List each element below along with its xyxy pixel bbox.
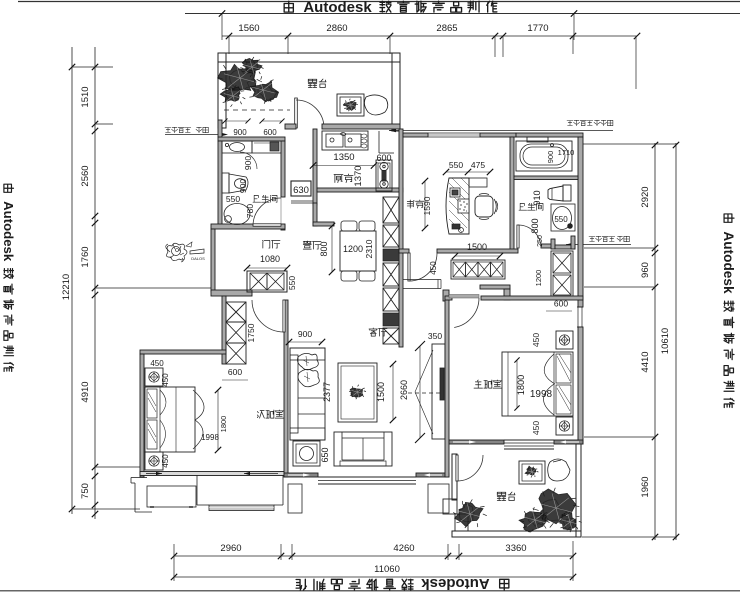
svg-text:800: 800 bbox=[530, 218, 540, 233]
svg-text:550: 550 bbox=[226, 194, 240, 204]
svg-text:1710: 1710 bbox=[558, 148, 575, 157]
svg-text:650: 650 bbox=[320, 447, 330, 462]
svg-text:1350: 1350 bbox=[333, 152, 354, 163]
svg-text:Autodesk: Autodesk bbox=[721, 231, 736, 294]
svg-text:450: 450 bbox=[161, 373, 170, 387]
svg-text:1370: 1370 bbox=[353, 165, 364, 186]
svg-text:1998: 1998 bbox=[530, 389, 553, 400]
svg-text:450: 450 bbox=[531, 333, 541, 347]
svg-text:1800: 1800 bbox=[516, 375, 526, 395]
svg-text:600: 600 bbox=[228, 367, 242, 377]
svg-text:12210: 12210 bbox=[61, 274, 72, 300]
svg-text:450: 450 bbox=[161, 454, 170, 468]
svg-text:900: 900 bbox=[243, 156, 253, 170]
svg-text:780: 780 bbox=[245, 204, 255, 218]
svg-text:2660: 2660 bbox=[399, 380, 409, 400]
svg-text:900: 900 bbox=[238, 179, 248, 193]
svg-text:1960: 1960 bbox=[640, 476, 651, 497]
svg-text:1560: 1560 bbox=[238, 23, 259, 34]
svg-text:1800: 1800 bbox=[219, 416, 228, 433]
svg-text:960: 960 bbox=[640, 262, 651, 278]
svg-text:900: 900 bbox=[233, 128, 247, 137]
svg-text:4410: 4410 bbox=[640, 351, 651, 372]
svg-text:1200: 1200 bbox=[534, 270, 543, 287]
svg-text:Autodesk: Autodesk bbox=[1, 201, 16, 262]
svg-text:2560: 2560 bbox=[80, 165, 91, 186]
svg-text:2960: 2960 bbox=[220, 543, 241, 554]
svg-text:2860: 2860 bbox=[326, 23, 347, 34]
svg-text:11060: 11060 bbox=[374, 564, 400, 575]
svg-text:2920: 2920 bbox=[640, 186, 651, 207]
svg-text:Autodesk: Autodesk bbox=[421, 575, 490, 592]
svg-text:DALOS: DALOS bbox=[191, 256, 205, 261]
svg-text:4260: 4260 bbox=[393, 543, 414, 554]
svg-text:750: 750 bbox=[80, 483, 91, 499]
svg-text:1200: 1200 bbox=[343, 244, 363, 254]
svg-text:630: 630 bbox=[293, 185, 309, 196]
svg-text:550: 550 bbox=[554, 215, 568, 224]
svg-text:475: 475 bbox=[471, 160, 485, 170]
svg-text:450: 450 bbox=[429, 261, 438, 275]
svg-text:2377: 2377 bbox=[322, 382, 332, 402]
svg-text:1760: 1760 bbox=[80, 246, 91, 267]
svg-text:1500: 1500 bbox=[467, 242, 487, 252]
svg-text:1770: 1770 bbox=[527, 23, 548, 34]
svg-text:1590: 1590 bbox=[422, 196, 432, 215]
svg-text:550: 550 bbox=[449, 160, 463, 170]
svg-text:550: 550 bbox=[287, 276, 297, 290]
svg-text:2865: 2865 bbox=[436, 23, 457, 34]
svg-text:1998: 1998 bbox=[201, 433, 219, 442]
svg-text:4910: 4910 bbox=[80, 381, 91, 402]
svg-text:2310: 2310 bbox=[364, 239, 374, 258]
svg-text:10610: 10610 bbox=[660, 328, 671, 354]
svg-text:600: 600 bbox=[263, 128, 277, 137]
svg-text:350: 350 bbox=[428, 331, 442, 341]
svg-text:900: 900 bbox=[546, 151, 555, 164]
svg-text:3360: 3360 bbox=[505, 543, 526, 554]
svg-text:1080: 1080 bbox=[260, 254, 280, 264]
svg-text:1750: 1750 bbox=[246, 323, 256, 342]
svg-text:450: 450 bbox=[150, 359, 164, 368]
svg-text:800: 800 bbox=[319, 241, 329, 256]
svg-text:900: 900 bbox=[298, 329, 312, 339]
svg-text:600: 600 bbox=[376, 153, 391, 163]
svg-text:1500: 1500 bbox=[376, 382, 386, 402]
svg-text:450: 450 bbox=[531, 421, 541, 435]
svg-text:250: 250 bbox=[537, 235, 544, 247]
svg-text:1510: 1510 bbox=[80, 86, 91, 107]
